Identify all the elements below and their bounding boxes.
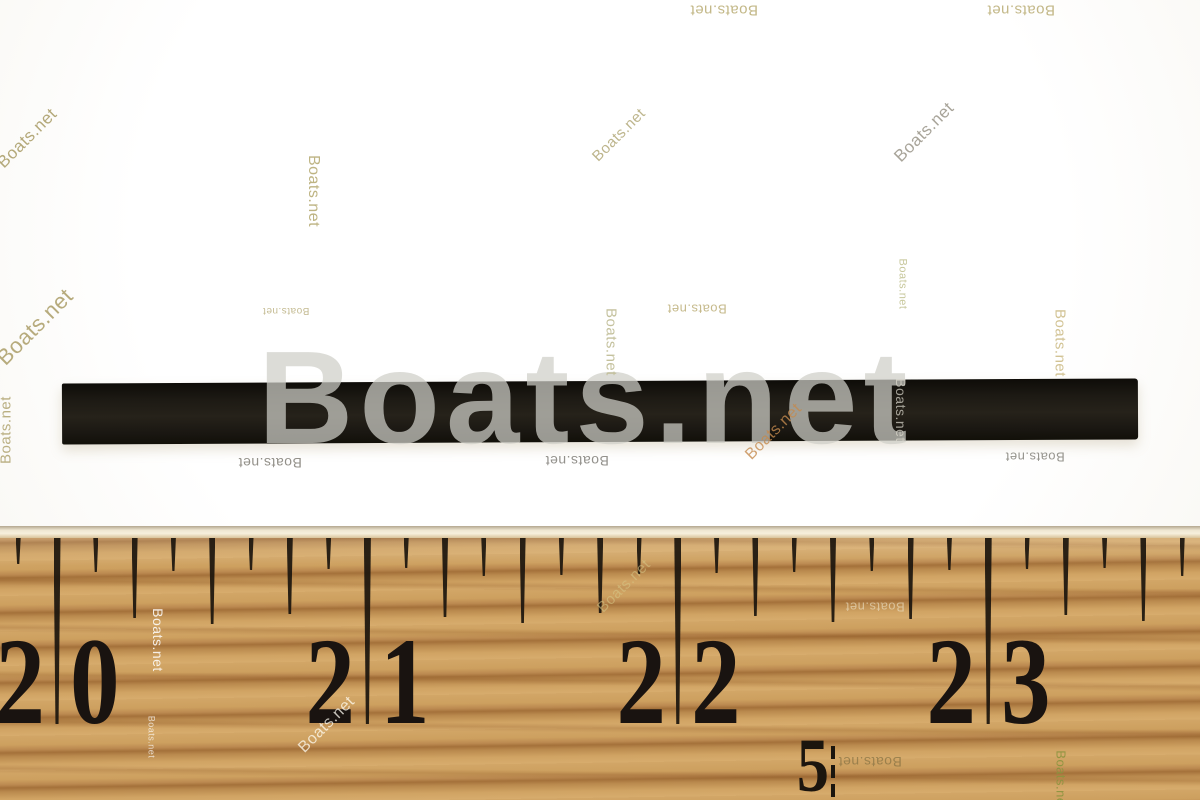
ruler-fraction-tick [16, 538, 21, 564]
ruler-inch-tick [674, 538, 681, 724]
ruler-fraction-tick [1180, 538, 1185, 576]
watermark-text: Boats.net [305, 155, 321, 227]
ruler-fraction-tick [1102, 538, 1107, 568]
ruler-inch-label: 3 [1001, 620, 1089, 744]
watermark-text: Boats.net [0, 105, 60, 171]
ruler-fraction-tick [93, 538, 98, 572]
ruler-fraction-tick [830, 538, 836, 622]
ruler-fraction-tick [947, 538, 952, 570]
ruler-fraction-tick [326, 538, 331, 569]
ruler-inch-label: 2 [578, 620, 666, 744]
wooden-ruler: 202122235 [0, 526, 1200, 800]
ruler-fraction-tick [171, 538, 176, 571]
watermark-text: Boats.net [1005, 451, 1064, 464]
ruler-inch-tick [364, 538, 371, 724]
ruler-fraction-tick [209, 538, 215, 624]
ruler-fraction-tick [908, 538, 914, 619]
watermark-text: Boats.net [667, 303, 726, 316]
ruler-fraction-tick [287, 538, 293, 614]
big-watermark-text: Boats.net [258, 332, 913, 464]
ruler-fraction-tick [559, 538, 564, 575]
ruler-fraction-tick [752, 538, 758, 616]
ruler-inch-label: 2 [888, 620, 976, 744]
watermark-text: Boats.net [590, 106, 649, 165]
ruler-fraction-tick [637, 538, 642, 574]
ruler-bevel-edge [0, 526, 1200, 538]
ruler-inch-tick [54, 538, 61, 724]
ruler-inch-label: 2 [267, 620, 355, 744]
ruler-fraction-tick [1025, 538, 1030, 569]
ruler-fraction-tick [132, 538, 138, 618]
watermark-text: Boats.net [891, 99, 957, 165]
ruler-half-inch-tick [831, 746, 835, 800]
watermark-text: Boats.net [987, 3, 1055, 18]
ruler-inch-label: 0 [70, 620, 158, 744]
ruler-fraction-tick [481, 538, 486, 576]
watermark-text: Boats.net [263, 305, 310, 315]
ruler-fraction-tick [869, 538, 874, 571]
ruler-inch-label: 2 [0, 620, 45, 744]
ruler-fraction-tick [597, 538, 603, 613]
ruler-fraction-tick [404, 538, 409, 568]
watermark-text: Boats.net [0, 396, 14, 464]
product-photo: Boats.net 202122235 Boats.netBoats.netBo… [0, 0, 1200, 800]
ruler-fraction-tick [442, 538, 448, 617]
ruler-half-inch-label: 5 [778, 728, 829, 800]
ruler-fraction-tick [792, 538, 797, 572]
watermark-text: Boats.net [690, 3, 758, 18]
ruler-fraction-tick [714, 538, 719, 573]
ruler-fraction-tick [1140, 538, 1146, 621]
watermark-text: Boats.net [0, 285, 77, 369]
ruler-inch-label: 2 [691, 620, 779, 744]
ruler-inch-tick [985, 538, 992, 724]
watermark-text: Boats.net [897, 259, 908, 310]
ruler-inch-label: 1 [380, 620, 468, 744]
ruler-fraction-tick [249, 538, 254, 570]
watermark-text: Boats.net [1053, 309, 1068, 377]
ruler-fraction-tick [1063, 538, 1069, 615]
ruler-fraction-tick [520, 538, 526, 623]
